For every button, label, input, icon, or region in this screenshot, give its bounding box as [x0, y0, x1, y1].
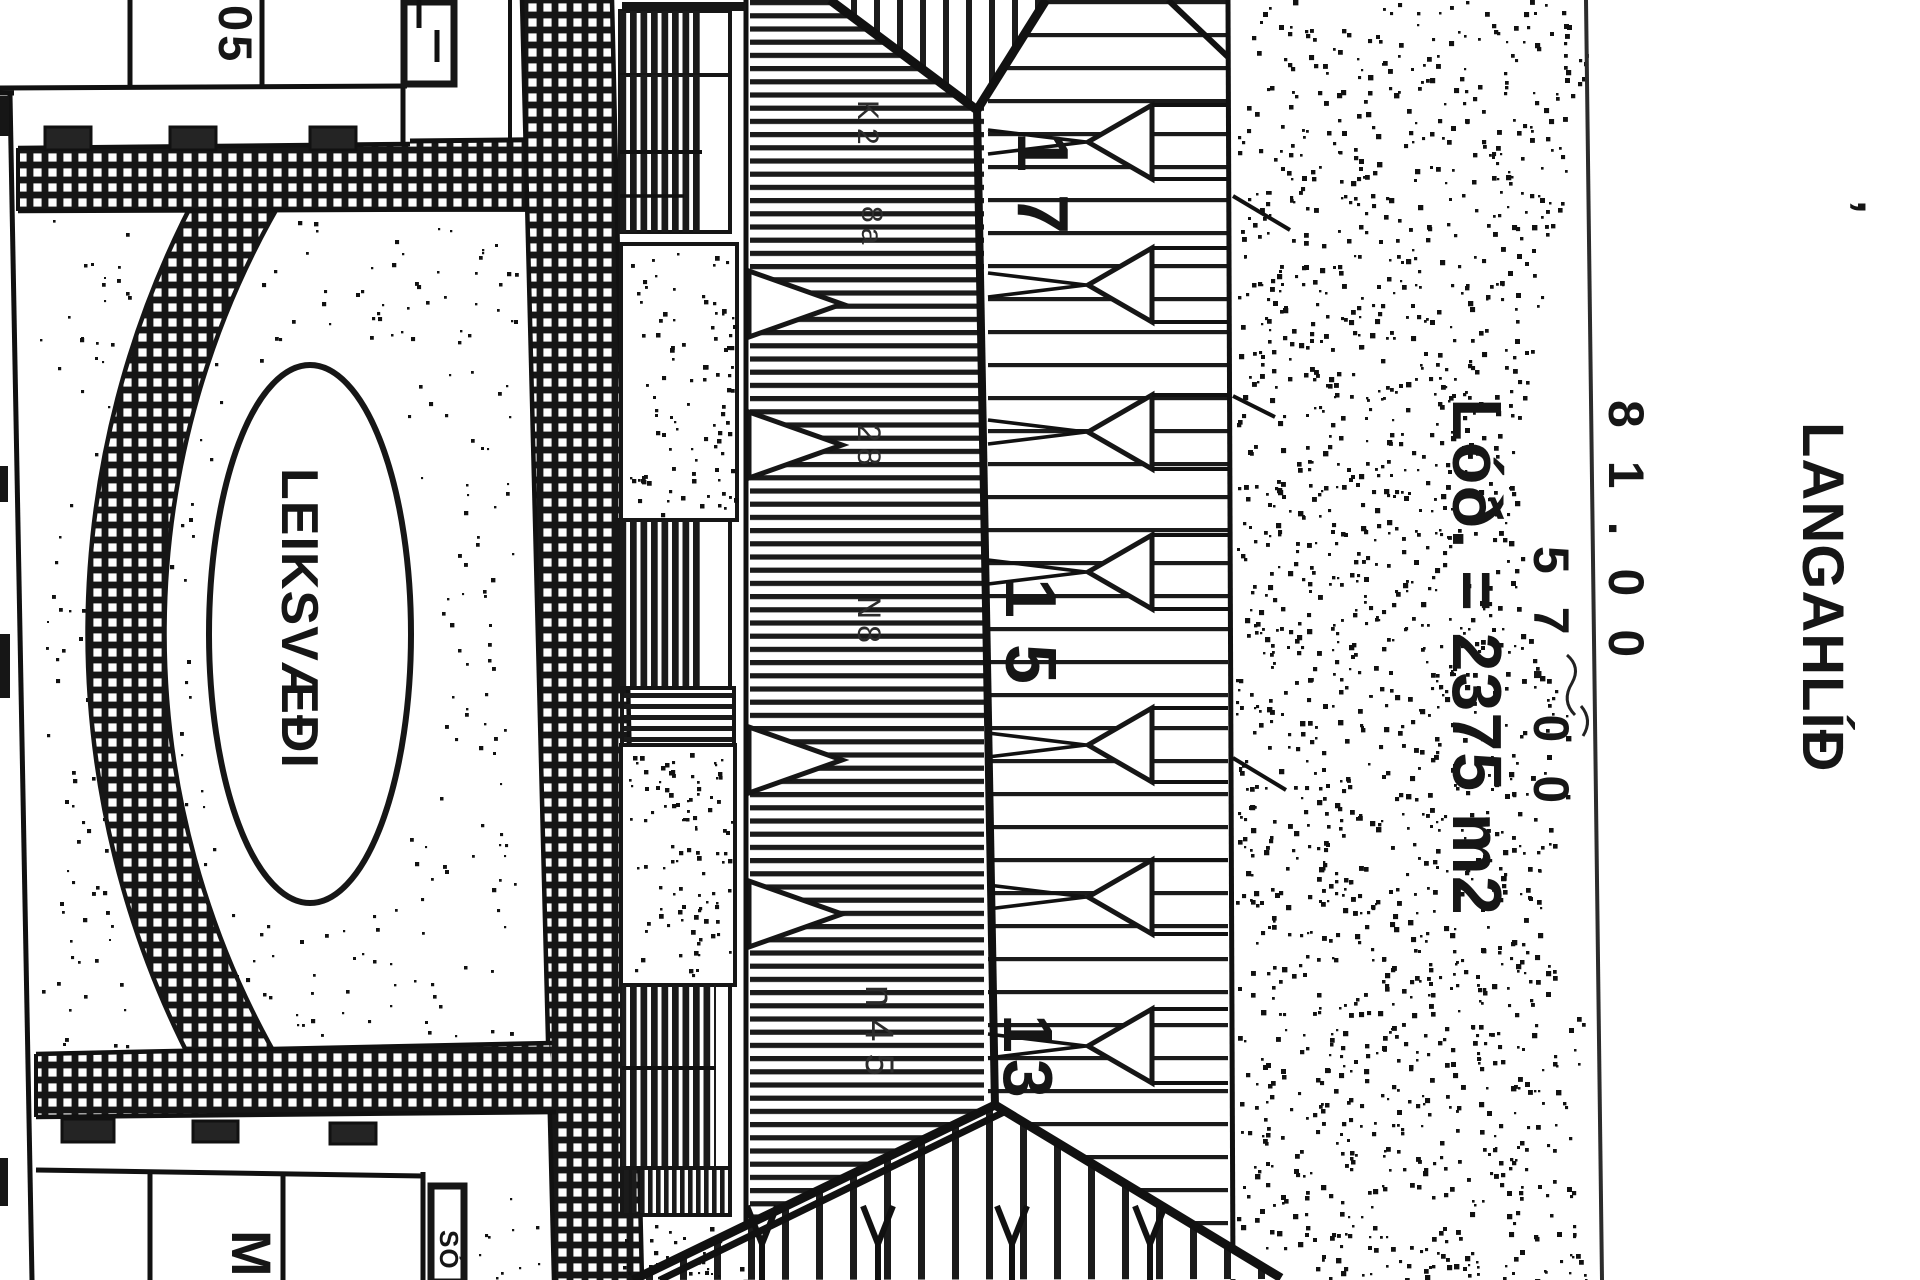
- svg-text:SÓ: SÓ: [434, 1230, 464, 1270]
- svg-text:,: ,: [1847, 200, 1903, 214]
- svg-text:LANGAHLÍÐ: LANGAHLÍÐ: [1790, 422, 1855, 773]
- svg-text:13: 13: [989, 1014, 1067, 1104]
- svg-text:n45: n45: [857, 985, 901, 1088]
- svg-text:57.00: 57.00: [1523, 546, 1579, 836]
- svg-text:N8: N8: [851, 596, 887, 649]
- svg-text:28: 28: [851, 424, 887, 472]
- svg-text:05: 05: [209, 5, 262, 65]
- svg-text:8a: 8a: [855, 206, 888, 249]
- svg-text:M5: M5: [220, 1230, 283, 1280]
- svg-text:15: 15: [990, 578, 1070, 710]
- svg-text:Lóð. = 2375 m2: Lóð. = 2375 m2: [1438, 398, 1516, 916]
- svg-text:K2: K2: [851, 100, 884, 153]
- svg-text:81.00: 81.00: [1598, 400, 1654, 690]
- svg-text:LEIKSVÆÐI: LEIKSVÆÐI: [270, 468, 328, 769]
- svg-text:17: 17: [1002, 132, 1082, 256]
